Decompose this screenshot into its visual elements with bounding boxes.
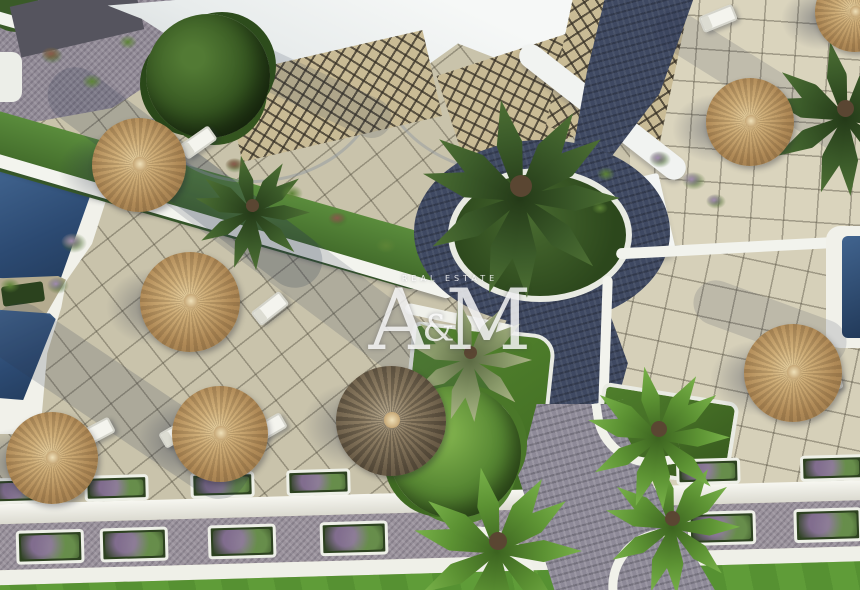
plant-tuft	[328, 212, 348, 227]
strip-planter-box	[100, 527, 169, 563]
strip-planter-box	[800, 454, 860, 482]
thatch-umbrella	[336, 366, 446, 476]
thatch-umbrella	[706, 78, 794, 166]
palm-tree-top-view	[586, 356, 730, 500]
aerial-resort-render: A & M REAL ESTATE	[0, 0, 860, 590]
plant-tuft	[119, 35, 137, 49]
palm-tree-top-view	[412, 455, 582, 590]
thatch-umbrella	[140, 252, 240, 352]
plant-tuft	[0, 278, 20, 293]
plant-tuft	[592, 202, 608, 214]
thatch-umbrella	[92, 118, 186, 212]
strip-planter-box	[84, 474, 149, 502]
thatch-umbrella	[744, 324, 842, 422]
thatch-umbrella	[172, 386, 268, 482]
pool-steps	[0, 52, 22, 102]
plant-tuft	[61, 233, 87, 253]
tree-canopy	[146, 14, 270, 138]
strip-planter-box	[320, 520, 389, 556]
watermark-letters: A & M	[380, 252, 520, 356]
right-pool-water	[842, 236, 860, 338]
palm-tree-top-view	[194, 147, 310, 263]
plant-tuft	[41, 47, 63, 64]
strip-planter-box	[16, 529, 85, 565]
plant-tuft	[597, 167, 615, 181]
watermark-letter-a: A	[369, 284, 430, 356]
strip-planter-box	[286, 468, 351, 496]
strip-planter-box	[793, 507, 860, 543]
plant-tuft	[376, 238, 396, 253]
thatch-umbrella	[6, 412, 98, 504]
plant-tuft	[706, 194, 726, 209]
plant-tuft	[281, 185, 303, 202]
plant-tuft	[682, 172, 706, 190]
strip-planter-box	[208, 524, 277, 560]
plant-tuft	[47, 277, 69, 294]
watermark-ampersand: &	[422, 312, 454, 348]
watermark-logo: A & M REAL ESTATE	[380, 252, 520, 356]
plant-tuft	[82, 74, 102, 89]
plant-tuft	[649, 151, 671, 168]
watermark-tagline: REAL ESTATE	[380, 274, 520, 283]
watermark-letter-m: M	[445, 284, 531, 356]
plant-tuft	[225, 158, 245, 173]
